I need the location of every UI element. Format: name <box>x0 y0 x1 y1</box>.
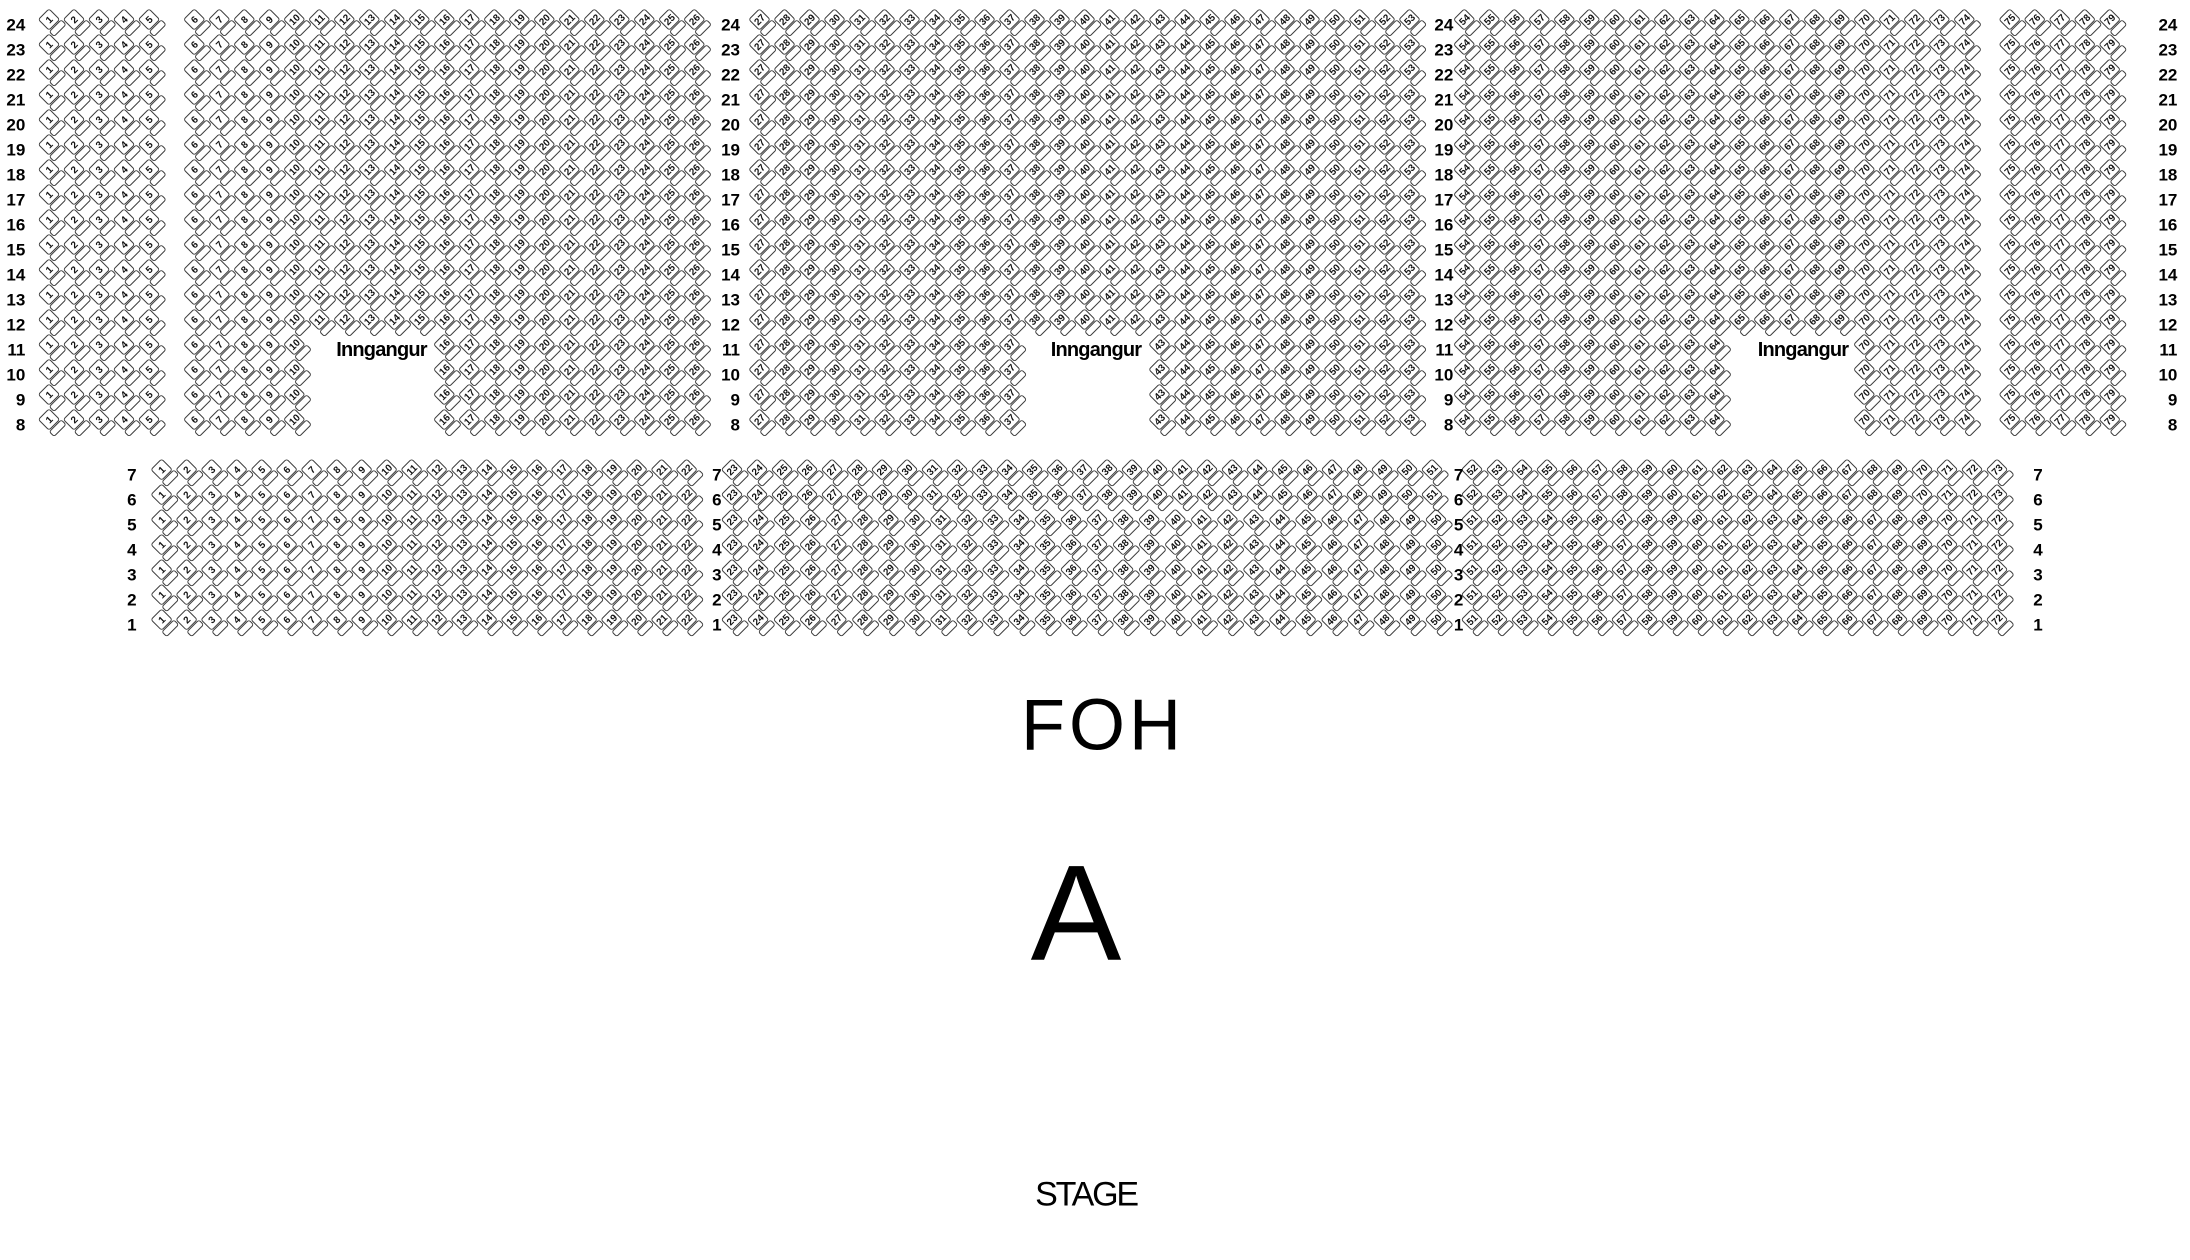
svg-text:6: 6 <box>127 491 136 510</box>
svg-text:10: 10 <box>6 366 25 385</box>
svg-text:18: 18 <box>1434 166 1453 185</box>
svg-text:16: 16 <box>1434 216 1453 235</box>
svg-text:20: 20 <box>1434 116 1453 135</box>
svg-text:24: 24 <box>1434 16 1453 35</box>
svg-text:24: 24 <box>6 16 25 35</box>
svg-text:5: 5 <box>1454 516 1463 535</box>
svg-text:1: 1 <box>712 616 721 635</box>
svg-text:11: 11 <box>1435 341 1453 360</box>
svg-text:14: 14 <box>721 266 740 285</box>
svg-text:19: 19 <box>6 141 25 160</box>
svg-text:5: 5 <box>2033 516 2042 535</box>
svg-text:20: 20 <box>6 116 25 135</box>
svg-text:3: 3 <box>127 566 136 585</box>
svg-text:21: 21 <box>6 91 25 110</box>
svg-text:15: 15 <box>6 241 25 260</box>
svg-text:21: 21 <box>721 91 740 110</box>
svg-text:1: 1 <box>127 616 136 635</box>
svg-text:8: 8 <box>16 416 25 435</box>
svg-text:9: 9 <box>16 391 25 410</box>
svg-text:1: 1 <box>1454 616 1463 635</box>
svg-text:11: 11 <box>2159 341 2177 360</box>
svg-text:13: 13 <box>721 291 740 310</box>
svg-text:14: 14 <box>1434 266 1453 285</box>
svg-text:22: 22 <box>1434 66 1453 85</box>
svg-text:18: 18 <box>6 166 25 185</box>
svg-text:4: 4 <box>1454 541 1464 560</box>
svg-text:8: 8 <box>731 416 740 435</box>
svg-text:20: 20 <box>721 116 740 135</box>
svg-text:6: 6 <box>712 491 721 510</box>
svg-text:A: A <box>1031 837 1122 989</box>
svg-text:19: 19 <box>721 141 740 160</box>
svg-text:9: 9 <box>2168 391 2177 410</box>
svg-text:14: 14 <box>2158 266 2177 285</box>
svg-text:11: 11 <box>722 341 740 360</box>
svg-text:23: 23 <box>2158 41 2177 60</box>
svg-text:6: 6 <box>1454 491 1463 510</box>
svg-text:23: 23 <box>6 41 25 60</box>
svg-text:16: 16 <box>6 216 25 235</box>
svg-text:18: 18 <box>721 166 740 185</box>
svg-text:11: 11 <box>7 341 25 360</box>
svg-text:5: 5 <box>712 516 721 535</box>
svg-text:7: 7 <box>2033 466 2042 485</box>
svg-text:3: 3 <box>712 566 721 585</box>
svg-text:4: 4 <box>127 541 137 560</box>
svg-text:22: 22 <box>2158 66 2177 85</box>
svg-text:7: 7 <box>1454 466 1463 485</box>
svg-text:2: 2 <box>1454 591 1463 610</box>
svg-text:13: 13 <box>1434 291 1453 310</box>
svg-text:8: 8 <box>2168 416 2177 435</box>
svg-text:10: 10 <box>721 366 740 385</box>
svg-text:15: 15 <box>721 241 740 260</box>
svg-text:7: 7 <box>712 466 721 485</box>
svg-text:22: 22 <box>6 66 25 85</box>
svg-text:Inngangur: Inngangur <box>1051 339 1143 361</box>
svg-text:2: 2 <box>2033 591 2042 610</box>
svg-text:3: 3 <box>1454 566 1463 585</box>
svg-text:17: 17 <box>2158 191 2177 210</box>
svg-text:8: 8 <box>1444 416 1453 435</box>
svg-text:12: 12 <box>1434 316 1453 335</box>
svg-text:17: 17 <box>6 191 25 210</box>
svg-text:3: 3 <box>2033 566 2042 585</box>
svg-text:20: 20 <box>2158 116 2177 135</box>
svg-text:15: 15 <box>2158 241 2177 260</box>
svg-text:16: 16 <box>721 216 740 235</box>
svg-text:17: 17 <box>721 191 740 210</box>
svg-text:14: 14 <box>6 266 25 285</box>
svg-text:10: 10 <box>1434 366 1453 385</box>
svg-text:24: 24 <box>2158 16 2177 35</box>
svg-text:1: 1 <box>2033 616 2042 635</box>
svg-text:4: 4 <box>712 541 722 560</box>
svg-text:21: 21 <box>1434 91 1453 110</box>
svg-text:21: 21 <box>2158 91 2177 110</box>
svg-text:7: 7 <box>127 466 136 485</box>
svg-text:12: 12 <box>2158 316 2177 335</box>
svg-text:FOH: FOH <box>1021 685 1185 765</box>
svg-text:22: 22 <box>721 66 740 85</box>
svg-text:23: 23 <box>1434 41 1453 60</box>
svg-text:12: 12 <box>721 316 740 335</box>
svg-text:12: 12 <box>6 316 25 335</box>
svg-text:9: 9 <box>1444 391 1453 410</box>
svg-text:5: 5 <box>127 516 136 535</box>
svg-text:2: 2 <box>127 591 136 610</box>
svg-text:24: 24 <box>721 16 740 35</box>
svg-text:15: 15 <box>1434 241 1453 260</box>
svg-text:17: 17 <box>1434 191 1453 210</box>
svg-text:13: 13 <box>6 291 25 310</box>
svg-text:2: 2 <box>712 591 721 610</box>
svg-text:Inngangur: Inngangur <box>1758 339 1850 361</box>
svg-text:Inngangur: Inngangur <box>336 339 428 361</box>
svg-text:4: 4 <box>2033 541 2043 560</box>
svg-text:19: 19 <box>1434 141 1453 160</box>
svg-text:10: 10 <box>2158 366 2177 385</box>
svg-text:9: 9 <box>731 391 740 410</box>
svg-text:6: 6 <box>2033 491 2042 510</box>
svg-text:19: 19 <box>2158 141 2177 160</box>
svg-text:23: 23 <box>721 41 740 60</box>
svg-text:STAGE: STAGE <box>1035 1176 1138 1214</box>
svg-text:16: 16 <box>2158 216 2177 235</box>
svg-text:13: 13 <box>2158 291 2177 310</box>
svg-text:18: 18 <box>2158 166 2177 185</box>
